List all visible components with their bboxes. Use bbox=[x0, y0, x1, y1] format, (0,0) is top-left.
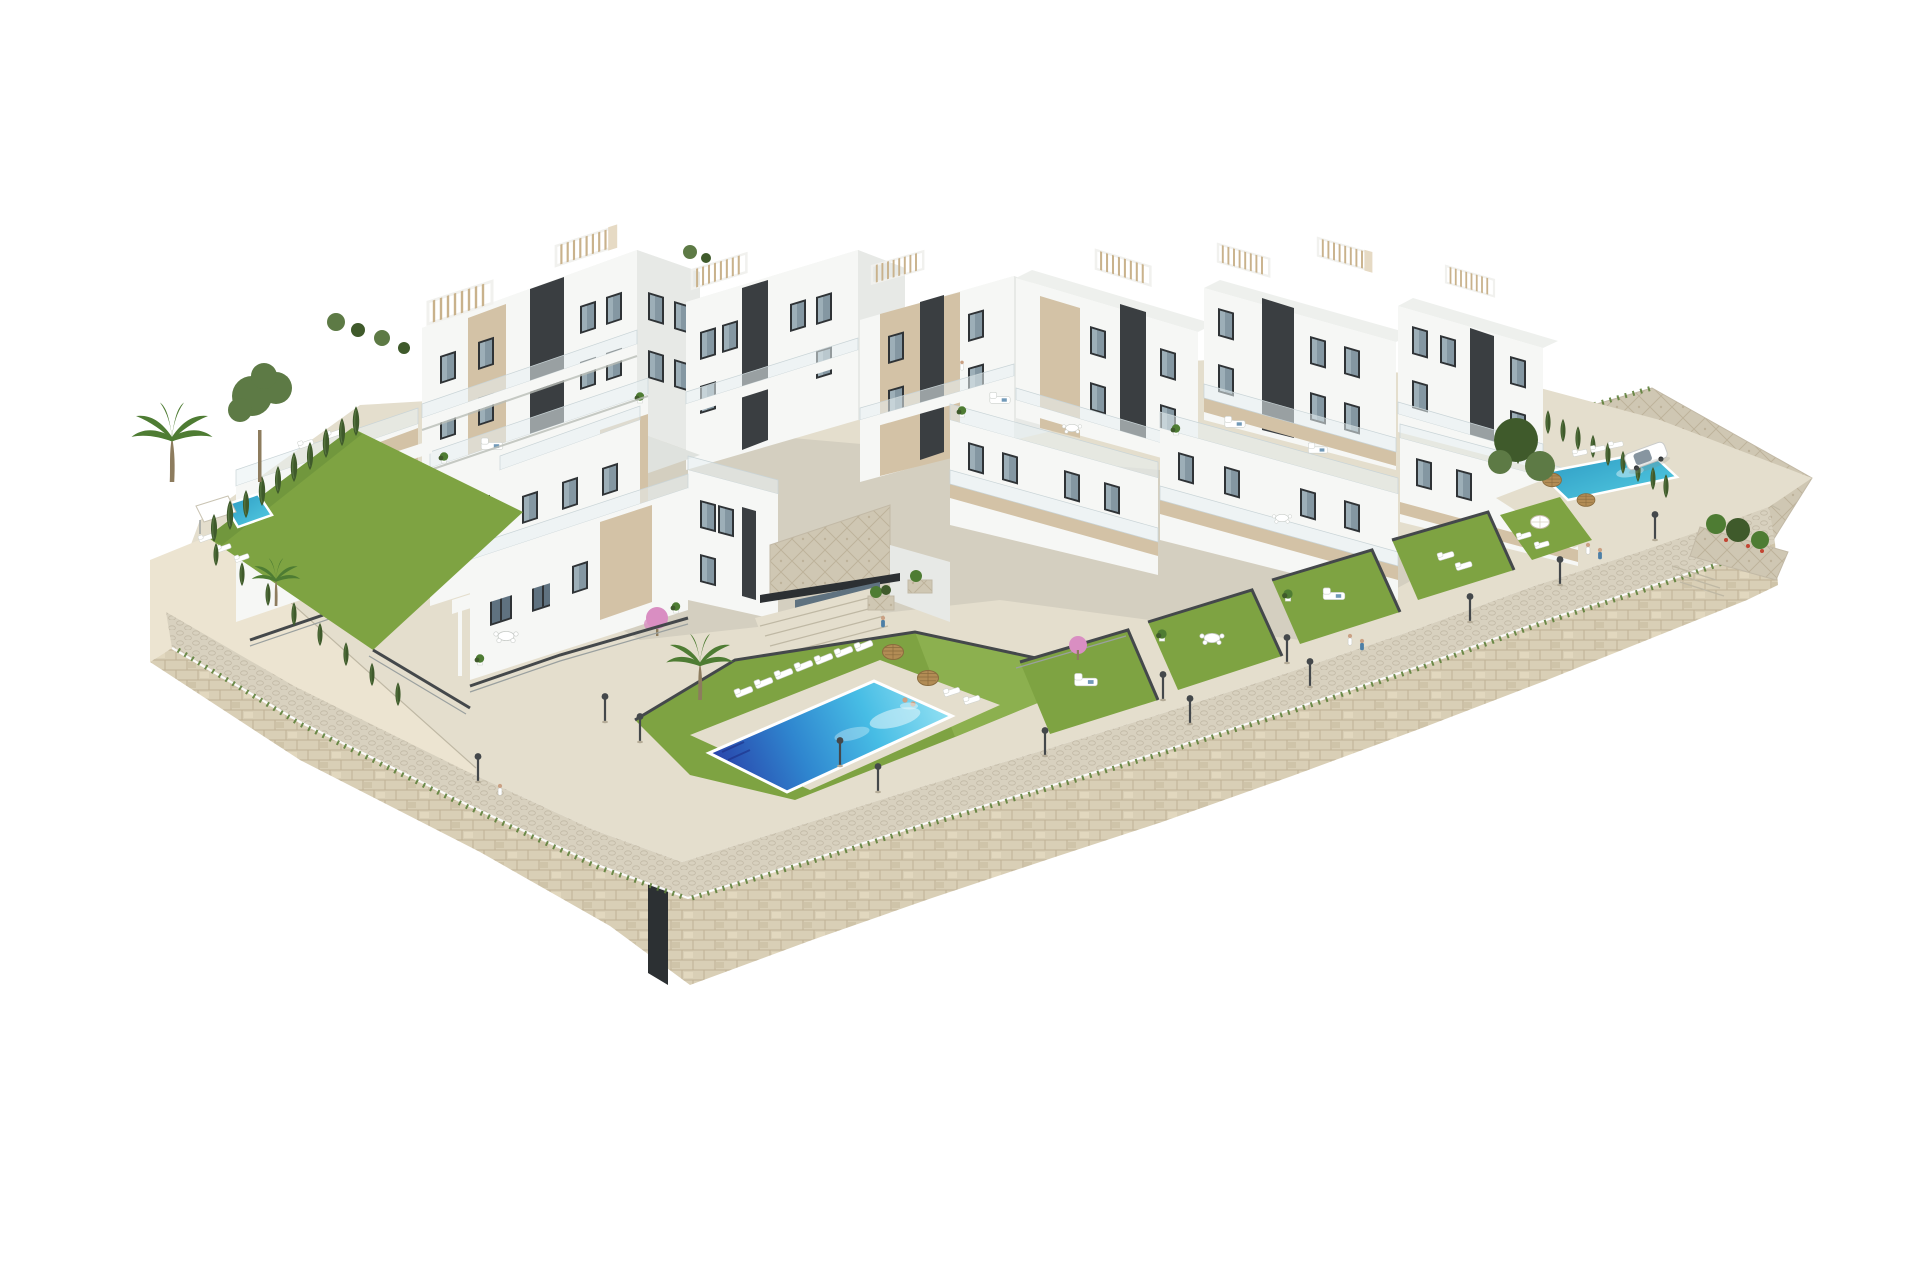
person bbox=[1598, 548, 1602, 559]
stone-planter bbox=[868, 585, 894, 610]
roof-pergola bbox=[1096, 250, 1150, 285]
straw-umbrella bbox=[918, 671, 939, 686]
palm-tree-left bbox=[132, 403, 213, 483]
roof-pergola bbox=[1318, 236, 1372, 272]
person bbox=[1586, 543, 1590, 554]
straw-umbrella bbox=[1577, 494, 1595, 507]
person bbox=[498, 784, 502, 795]
render-scene bbox=[0, 0, 1920, 1280]
person-on-roof bbox=[960, 361, 964, 371]
roof-pergola bbox=[1218, 244, 1269, 276]
person bbox=[1360, 639, 1364, 650]
roof-pergola bbox=[692, 253, 746, 288]
person bbox=[881, 616, 885, 627]
architectural-render-canvas bbox=[0, 0, 1920, 1280]
person bbox=[1348, 634, 1352, 645]
straw-umbrella bbox=[883, 645, 904, 660]
roof-pergola bbox=[1446, 266, 1494, 296]
